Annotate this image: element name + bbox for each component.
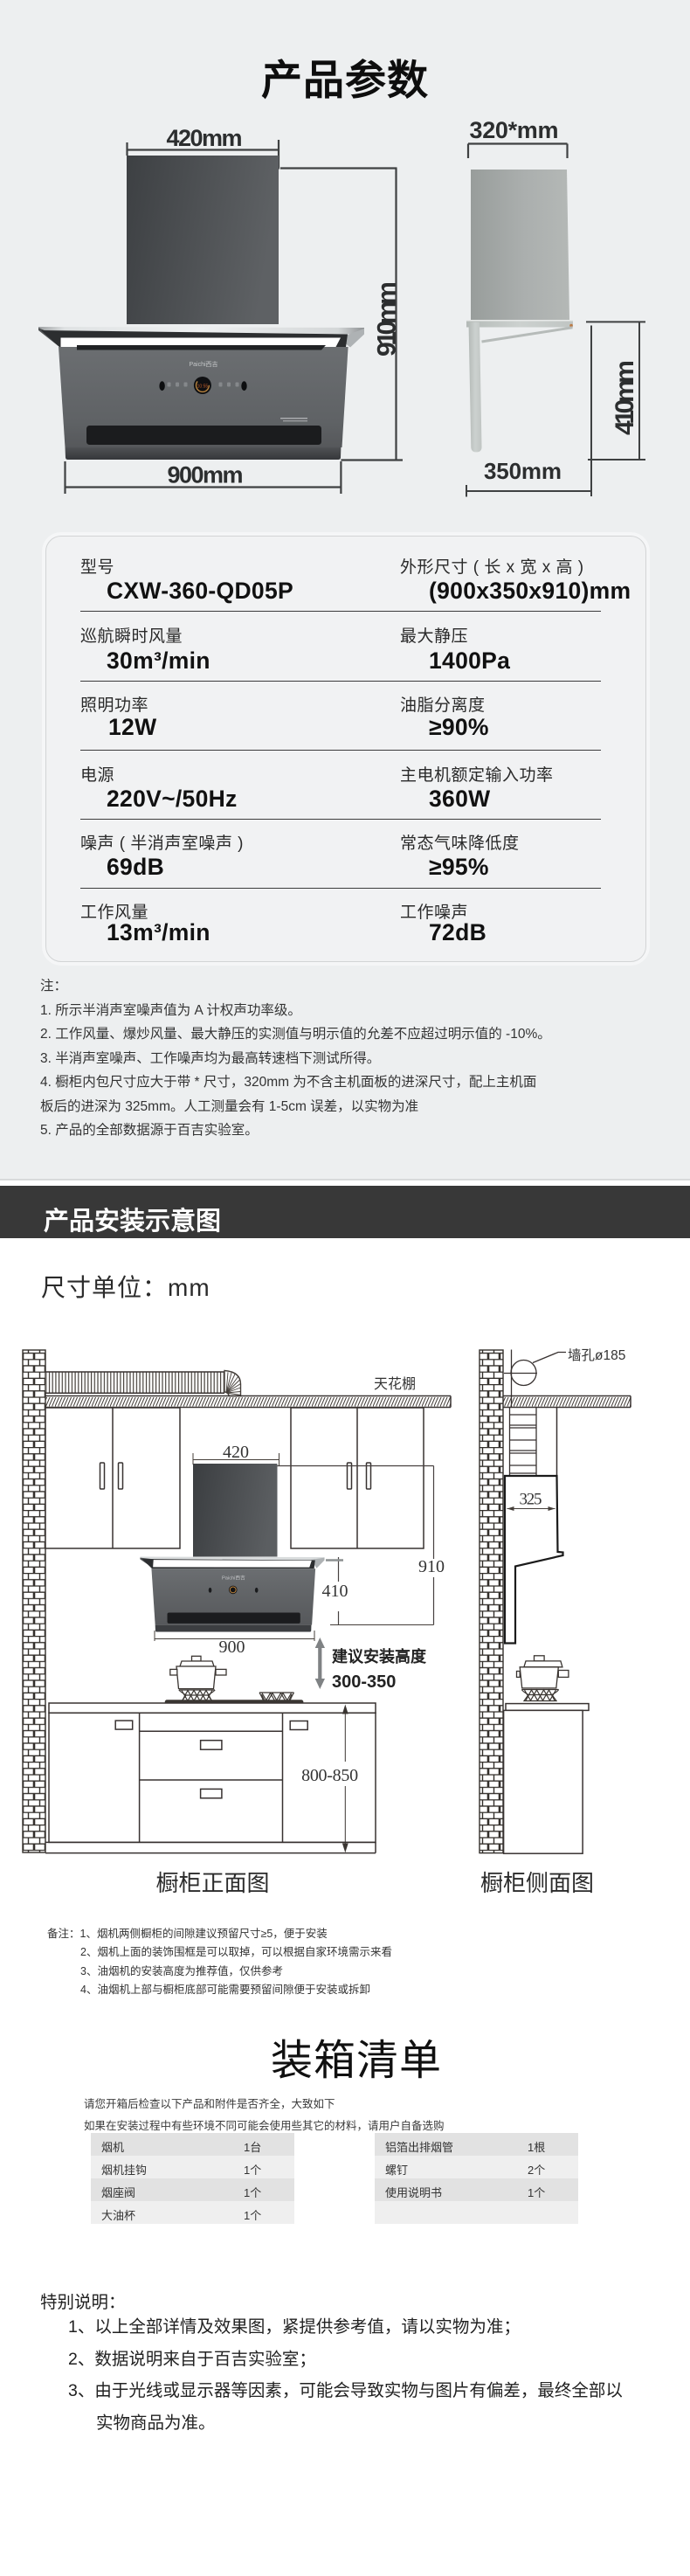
svg-text:420: 420 — [223, 1443, 249, 1462]
svg-text:910: 910 — [418, 1557, 445, 1576]
svg-text:Paichi西吉: Paichi西吉 — [222, 1575, 245, 1582]
svg-text:橱柜侧面图: 橱柜侧面图 — [480, 1870, 594, 1896]
svg-text:建议安装高度: 建议安装高度 — [332, 1647, 427, 1665]
svg-text:300-350: 300-350 — [332, 1672, 396, 1692]
svg-text:320*mm: 320*mm — [470, 117, 559, 143]
svg-text:900: 900 — [219, 1638, 245, 1657]
svg-text:410mm: 410mm — [611, 360, 639, 435]
svg-text:10:55: 10:55 — [197, 384, 209, 390]
svg-text:900mm: 900mm — [168, 462, 244, 488]
svg-text:天花棚: 天花棚 — [374, 1376, 416, 1392]
svg-text:350mm: 350mm — [484, 458, 562, 484]
svg-text:墙孔ø185: 墙孔ø185 — [568, 1347, 625, 1363]
svg-text:420mm: 420mm — [167, 125, 243, 151]
svg-text:410: 410 — [322, 1582, 348, 1601]
svg-text:800-850: 800-850 — [301, 1766, 358, 1785]
svg-text:325: 325 — [520, 1491, 542, 1509]
svg-text:910mm: 910mm — [373, 281, 402, 357]
svg-text:橱柜正面图: 橱柜正面图 — [155, 1870, 269, 1896]
svg-text:Paichi西吉: Paichi西吉 — [189, 361, 217, 368]
